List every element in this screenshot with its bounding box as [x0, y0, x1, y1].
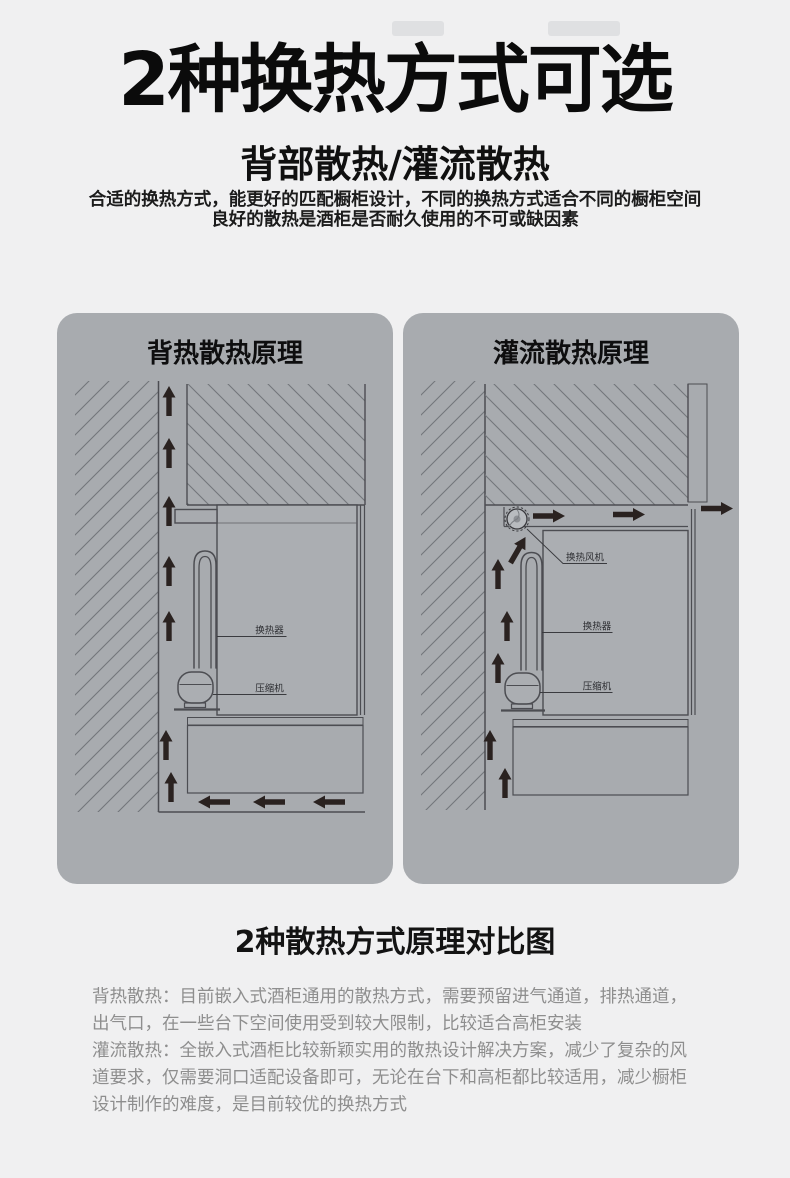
condenser-tube [521, 553, 542, 671]
front-panel-strip [688, 384, 707, 502]
condenser-tube [194, 551, 216, 668]
wall-section [421, 381, 485, 810]
description-paragraphs: 背热散热：目前嵌入式酒柜通用的散热方式，需要预留进气通道，排热通道，出气口，在一… [92, 984, 704, 1119]
heat-exchanger-label: 换热器 [255, 625, 284, 637]
top-duct [504, 507, 688, 531]
upper-cabinet-block [485, 384, 688, 505]
page-title: 2种换热方式可选 [0, 34, 790, 127]
intro-line-2: 良好的散热是酒柜是否耐久使用的不可或缺因素 [0, 211, 790, 231]
wall-section [75, 381, 159, 812]
heat-exchange-fan [505, 507, 529, 531]
wine-cooler-body [543, 509, 695, 715]
back-heat-description: 背热散热：目前嵌入式酒柜通用的散热方式，需要预留进气通道，排热通道，出气口，在一… [92, 984, 704, 1038]
heat-exchanger-label: 换热器 [583, 621, 612, 633]
compressor-shape [174, 672, 220, 710]
flow-through-diagram: 换热风机 换热器 压缩机 [403, 313, 739, 884]
flow-through-description: 灌流散热：全嵌入式酒柜比较新颖实用的散热设计解决方案，减少了复杂的风道要求，仅需… [92, 1038, 704, 1119]
comparison-heading: 2种散热方式原理对比图 [0, 917, 790, 961]
panel-back-heat: 换热器 压缩机 [57, 313, 393, 884]
intro-text: 合适的换热方式，能更好的匹配橱柜设计，不同的换热方式适合不同的橱柜空间 良好的散… [0, 191, 790, 230]
fan-label: 换热风机 [566, 552, 605, 564]
compressor-label: 压缩机 [583, 681, 612, 693]
compressor-shape [501, 673, 545, 711]
intro-line-1: 合适的换热方式，能更好的匹配橱柜设计，不同的换热方式适合不同的橱柜空间 [0, 191, 790, 211]
top-vent [175, 510, 217, 524]
product-infographic-page: 2种换热方式可选 背部散热/灌流散热 合适的换热方式，能更好的匹配橱柜设计，不同… [0, 0, 790, 1178]
base-plinth [513, 720, 688, 796]
compressor-label: 压缩机 [255, 683, 284, 695]
back-heat-panel-title: 背热散热原理 [57, 333, 393, 370]
back-heat-diagram: 换热器 压缩机 [57, 313, 393, 884]
flow-through-panel-title: 灌流散热原理 [403, 333, 739, 370]
panel-flow-through: 换热风机 换热器 压缩机 [403, 313, 739, 884]
page-subtitle: 背部散热/灌流散热 [0, 134, 790, 188]
upper-cabinet-block [187, 384, 365, 505]
